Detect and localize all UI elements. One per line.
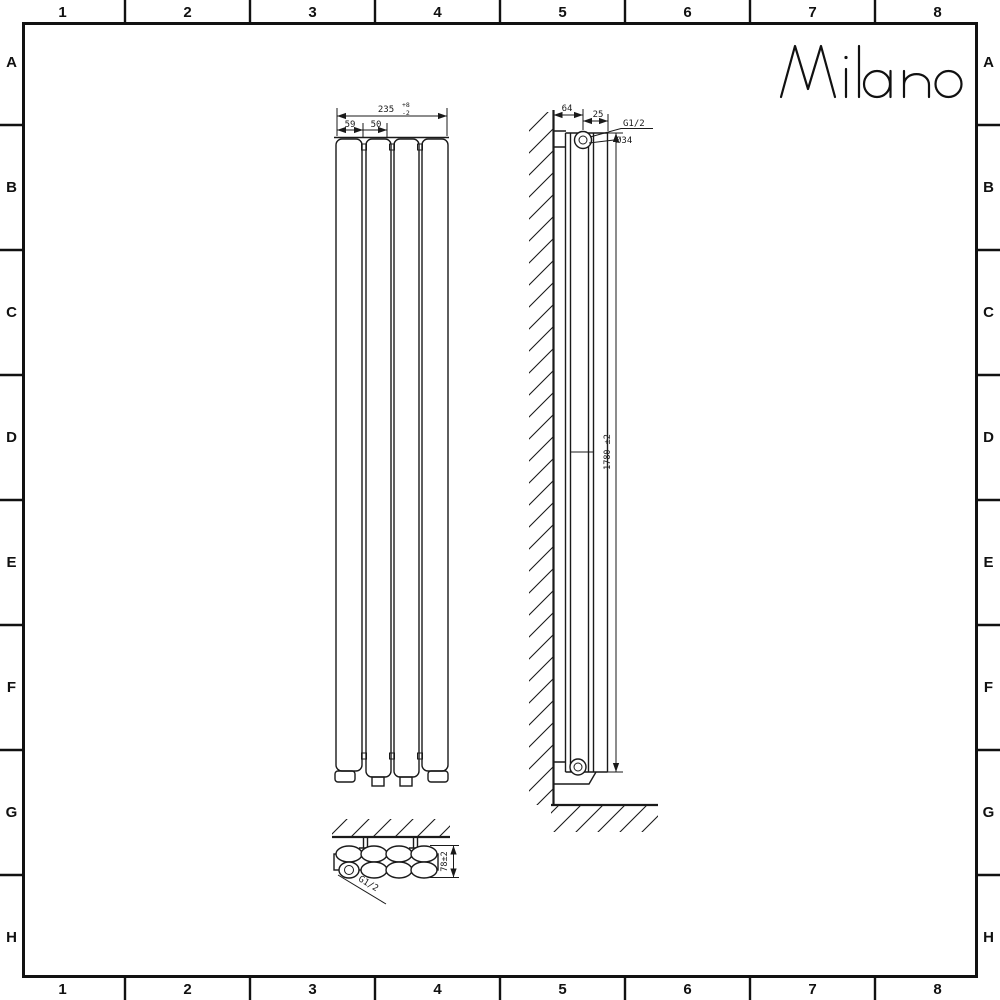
grid-column-label: 3 (308, 4, 316, 21)
logo-letter-m (781, 46, 835, 97)
grid-column-label: 7 (808, 981, 816, 998)
milano-logo (781, 46, 962, 97)
radiator-plan-body (334, 846, 438, 878)
dim-top-offset-value: 25 (593, 110, 604, 120)
dim-height: 1780 ±2 (603, 133, 623, 772)
grid-column-label: 5 (558, 981, 566, 998)
radiator-front-body (334, 138, 449, 787)
bracket-top (553, 131, 566, 147)
dim-height-value: 1780 ±2 (603, 434, 613, 470)
front-view: 235 +8 -2 59 50 (334, 101, 449, 786)
logo-letter-a (864, 71, 890, 97)
grid-column-label: 4 (433, 4, 442, 21)
drawing-border (0, 0, 1000, 1000)
grid-row-label: G (983, 804, 995, 821)
grid-column-label: 8 (933, 4, 941, 21)
dim-wall-offset-value: 64 (562, 104, 573, 114)
grid-column-label: 2 (183, 981, 191, 998)
grid-row-label: A (983, 54, 994, 71)
logo-letter-o (936, 71, 962, 97)
connection-top (575, 132, 592, 149)
dim-panel-a-value: 59 (345, 120, 356, 130)
grid-row-label: F (984, 679, 993, 696)
grid-column-label: 3 (308, 981, 316, 998)
grid-row-label: C (6, 304, 17, 321)
grid-column-label: 5 (558, 4, 566, 21)
grid-row-label: D (983, 429, 994, 446)
thread-callout: G1/2 (590, 119, 653, 137)
grid-column-label: 1 (58, 4, 66, 21)
grid-row-label: F (7, 679, 16, 696)
technical-drawing: 1 2 3 4 5 6 7 8 1 2 3 4 5 6 7 8 A B C D … (0, 0, 1000, 1000)
dim-panel-pitch: 59 50 (337, 120, 387, 138)
dim-width-tol-plus: +8 (402, 101, 410, 109)
thread-callout-plan: G1/2 (338, 874, 386, 904)
diameter-callout-value: Ø34 (616, 135, 632, 146)
dim-width-tol-minus: -2 (402, 109, 410, 117)
drawing-sheet: 1 2 3 4 5 6 7 8 1 2 3 4 5 6 7 8 A B C D … (0, 0, 1000, 1000)
grid-column-label: 7 (808, 4, 816, 21)
grid-column-label: 2 (183, 4, 191, 21)
dim-width-total-value: 235 (378, 105, 394, 115)
connection-bottom (570, 759, 586, 775)
grid-column-label: 1 (58, 981, 66, 998)
stub-left (372, 777, 384, 786)
frame-ticks-right (977, 125, 1000, 875)
dim-width-total: 235 +8 -2 (337, 101, 447, 136)
floor-hatch (551, 805, 658, 832)
grid-column-label: 8 (933, 981, 941, 998)
grid-row-label: C (983, 304, 994, 321)
milano-logo-text: Milano (873, 119, 874, 120)
grid-row-label: E (983, 554, 993, 571)
grid-row-label: E (6, 554, 16, 571)
grid-row-label: H (6, 929, 17, 946)
wall-hatch (529, 112, 554, 805)
thread-callout-value: G1/2 (623, 119, 645, 129)
logo-letter-n (904, 71, 929, 97)
grid-column-label: 6 (683, 981, 691, 998)
radiator-side-body (566, 133, 608, 772)
grid-row-label: D (6, 429, 17, 446)
side-view: 64 25 G1/2 Ø34 1780 ±2 (529, 104, 658, 832)
grid-row-label: G (6, 804, 18, 821)
foot-right (428, 771, 448, 782)
grid-row-label: B (6, 179, 17, 196)
dim-panel-b-value: 50 (371, 120, 382, 130)
grid-row-label: A (6, 54, 17, 71)
logo-letter-i-dot (844, 56, 847, 59)
grid-row-label: H (983, 929, 994, 946)
frame-ticks-top (125, 0, 875, 23)
grid-column-label: 6 (683, 4, 691, 21)
wall-hatch-plan (332, 819, 450, 837)
frame-ticks-bottom (125, 977, 875, 1000)
grid-column-label: 4 (433, 981, 442, 998)
dim-top-offset: 25 (583, 110, 608, 131)
connection-plan (339, 862, 359, 878)
top-view: G1/2 78±2 (332, 819, 459, 904)
dim-depth-value: 78±2 (440, 851, 450, 871)
foot-left (335, 771, 355, 782)
frame-ticks-left (0, 125, 23, 875)
stub-right (400, 777, 412, 786)
diameter-callout: Ø34 (589, 135, 632, 146)
dim-wall-offset: 64 (554, 104, 584, 130)
grid-row-label: B (983, 179, 994, 196)
